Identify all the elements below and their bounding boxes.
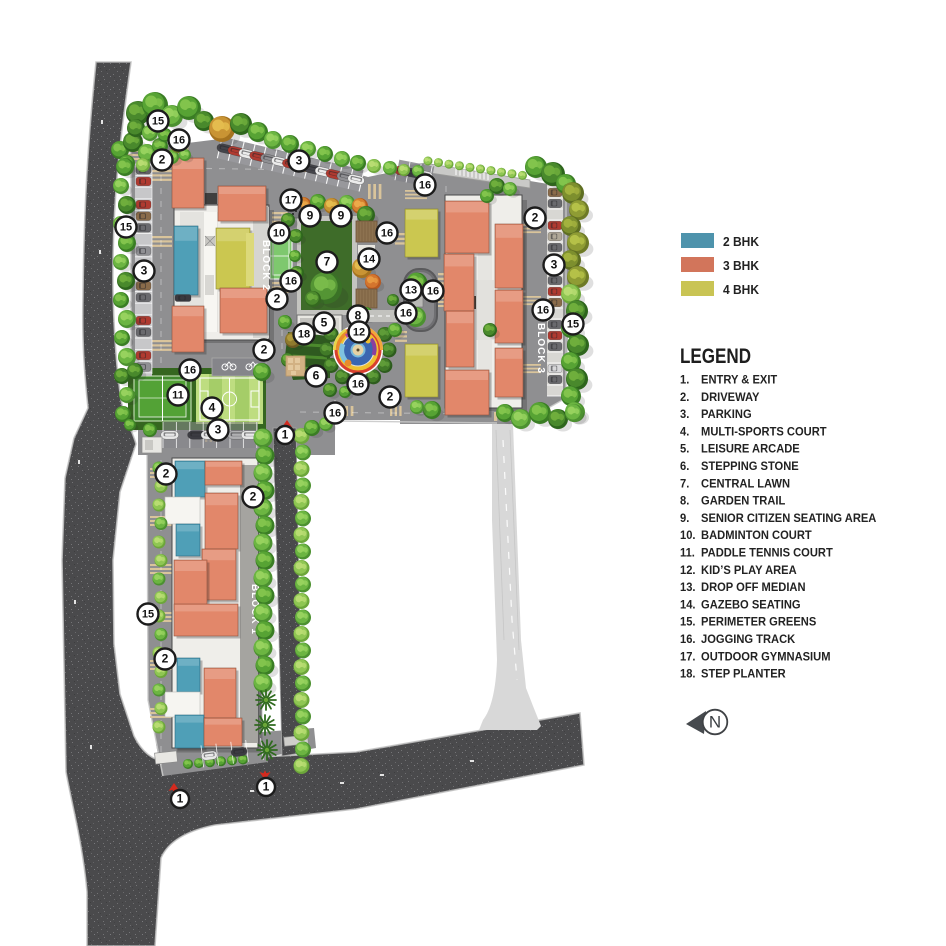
svg-text:2: 2 [387, 390, 394, 404]
svg-text:15: 15 [120, 221, 132, 233]
svg-text:BLOCK 2: BLOCK 2 [260, 240, 271, 291]
svg-text:7.: 7. [680, 478, 689, 490]
svg-text:1: 1 [263, 780, 270, 794]
svg-text:2.: 2. [680, 391, 689, 403]
svg-text:GAZEBO SEATING: GAZEBO SEATING [701, 599, 801, 611]
svg-text:10: 10 [273, 227, 285, 239]
svg-text:7: 7 [324, 255, 331, 269]
svg-text:15: 15 [142, 608, 154, 620]
svg-text:BLOCK 3: BLOCK 3 [535, 323, 546, 374]
svg-text:JOGGING TRACK: JOGGING TRACK [701, 634, 796, 646]
svg-text:1.: 1. [680, 374, 689, 386]
svg-text:14: 14 [363, 253, 376, 265]
svg-text:3: 3 [551, 258, 558, 272]
svg-text:2 BHK: 2 BHK [723, 234, 760, 249]
svg-text:OUTDOOR GYMNASIUM: OUTDOOR GYMNASIUM [701, 651, 830, 663]
svg-text:2: 2 [532, 211, 539, 225]
svg-text:16: 16 [173, 134, 185, 146]
svg-text:6.: 6. [680, 461, 689, 473]
svg-text:4 BHK: 4 BHK [723, 282, 760, 297]
svg-text:16: 16 [419, 179, 431, 191]
svg-text:DROP OFF MEDIAN: DROP OFF MEDIAN [701, 582, 805, 594]
svg-text:4.: 4. [680, 426, 689, 438]
svg-text:GARDEN TRAIL: GARDEN TRAIL [701, 495, 785, 507]
svg-text:13.: 13. [680, 582, 696, 594]
svg-text:10.: 10. [680, 530, 696, 542]
svg-text:16: 16 [352, 378, 364, 390]
svg-text:16: 16 [381, 227, 393, 239]
svg-text:PADDLE TENNIS COURT: PADDLE TENNIS COURT [701, 547, 833, 559]
svg-text:4: 4 [209, 401, 216, 415]
svg-text:9.: 9. [680, 513, 689, 525]
svg-text:3.: 3. [680, 409, 689, 421]
svg-text:5.: 5. [680, 443, 689, 455]
svg-text:ENTRY & EXIT: ENTRY & EXIT [701, 374, 777, 386]
svg-text:1: 1 [177, 792, 184, 806]
svg-text:2: 2 [162, 652, 169, 666]
svg-text:PARKING: PARKING [701, 409, 752, 421]
svg-text:BADMINTON COURT: BADMINTON COURT [701, 530, 812, 542]
svg-text:17.: 17. [680, 651, 696, 663]
svg-text:13: 13 [405, 284, 417, 296]
svg-text:3: 3 [215, 423, 222, 437]
svg-text:2: 2 [163, 467, 170, 481]
svg-text:9: 9 [338, 209, 345, 223]
svg-text:14.: 14. [680, 599, 696, 611]
svg-text:11.: 11. [680, 547, 695, 559]
svg-text:16: 16 [329, 407, 341, 419]
svg-text:1: 1 [282, 428, 289, 442]
svg-text:9: 9 [307, 209, 314, 223]
svg-text:3: 3 [141, 264, 148, 278]
svg-text:LEGEND: LEGEND [680, 345, 751, 368]
svg-text:16: 16 [537, 304, 549, 316]
svg-text:6: 6 [313, 369, 320, 383]
svg-text:8.: 8. [680, 495, 689, 507]
svg-text:16: 16 [400, 307, 412, 319]
svg-text:15: 15 [152, 115, 164, 127]
svg-text:16: 16 [427, 285, 439, 297]
svg-text:2: 2 [274, 292, 281, 306]
svg-text:STEPPING STONE: STEPPING STONE [701, 461, 799, 473]
svg-text:18.: 18. [680, 668, 696, 680]
svg-text:15: 15 [567, 318, 579, 330]
svg-text:N: N [709, 712, 721, 731]
svg-text:2: 2 [159, 153, 166, 167]
svg-text:2: 2 [261, 343, 268, 357]
svg-text:12: 12 [353, 326, 365, 338]
svg-text:DRIVEWAY: DRIVEWAY [701, 391, 760, 403]
svg-text:3 BHK: 3 BHK [723, 258, 760, 273]
svg-text:16: 16 [184, 364, 196, 376]
svg-text:5: 5 [321, 316, 328, 330]
svg-text:18: 18 [298, 328, 310, 340]
svg-text:KID’S PLAY AREA: KID’S PLAY AREA [701, 564, 797, 576]
svg-text:3: 3 [296, 154, 303, 168]
svg-text:STEP PLANTER: STEP PLANTER [701, 668, 786, 680]
svg-text:12.: 12. [680, 564, 696, 576]
svg-text:2: 2 [250, 490, 257, 504]
svg-text:CENTRAL LAWN: CENTRAL LAWN [701, 478, 790, 490]
svg-text:16.: 16. [680, 634, 696, 646]
svg-text:17: 17 [285, 194, 297, 206]
svg-text:SENIOR CITIZEN SEATING AREA: SENIOR CITIZEN SEATING AREA [701, 513, 877, 525]
svg-text:15.: 15. [680, 616, 696, 628]
svg-text:16: 16 [285, 275, 297, 287]
svg-text:11: 11 [172, 389, 184, 401]
svg-text:LEISURE ARCADE: LEISURE ARCADE [701, 443, 800, 455]
svg-text:PERIMETER GREENS: PERIMETER GREENS [701, 616, 817, 628]
svg-text:MULTI-SPORTS COURT: MULTI-SPORTS COURT [701, 426, 827, 438]
